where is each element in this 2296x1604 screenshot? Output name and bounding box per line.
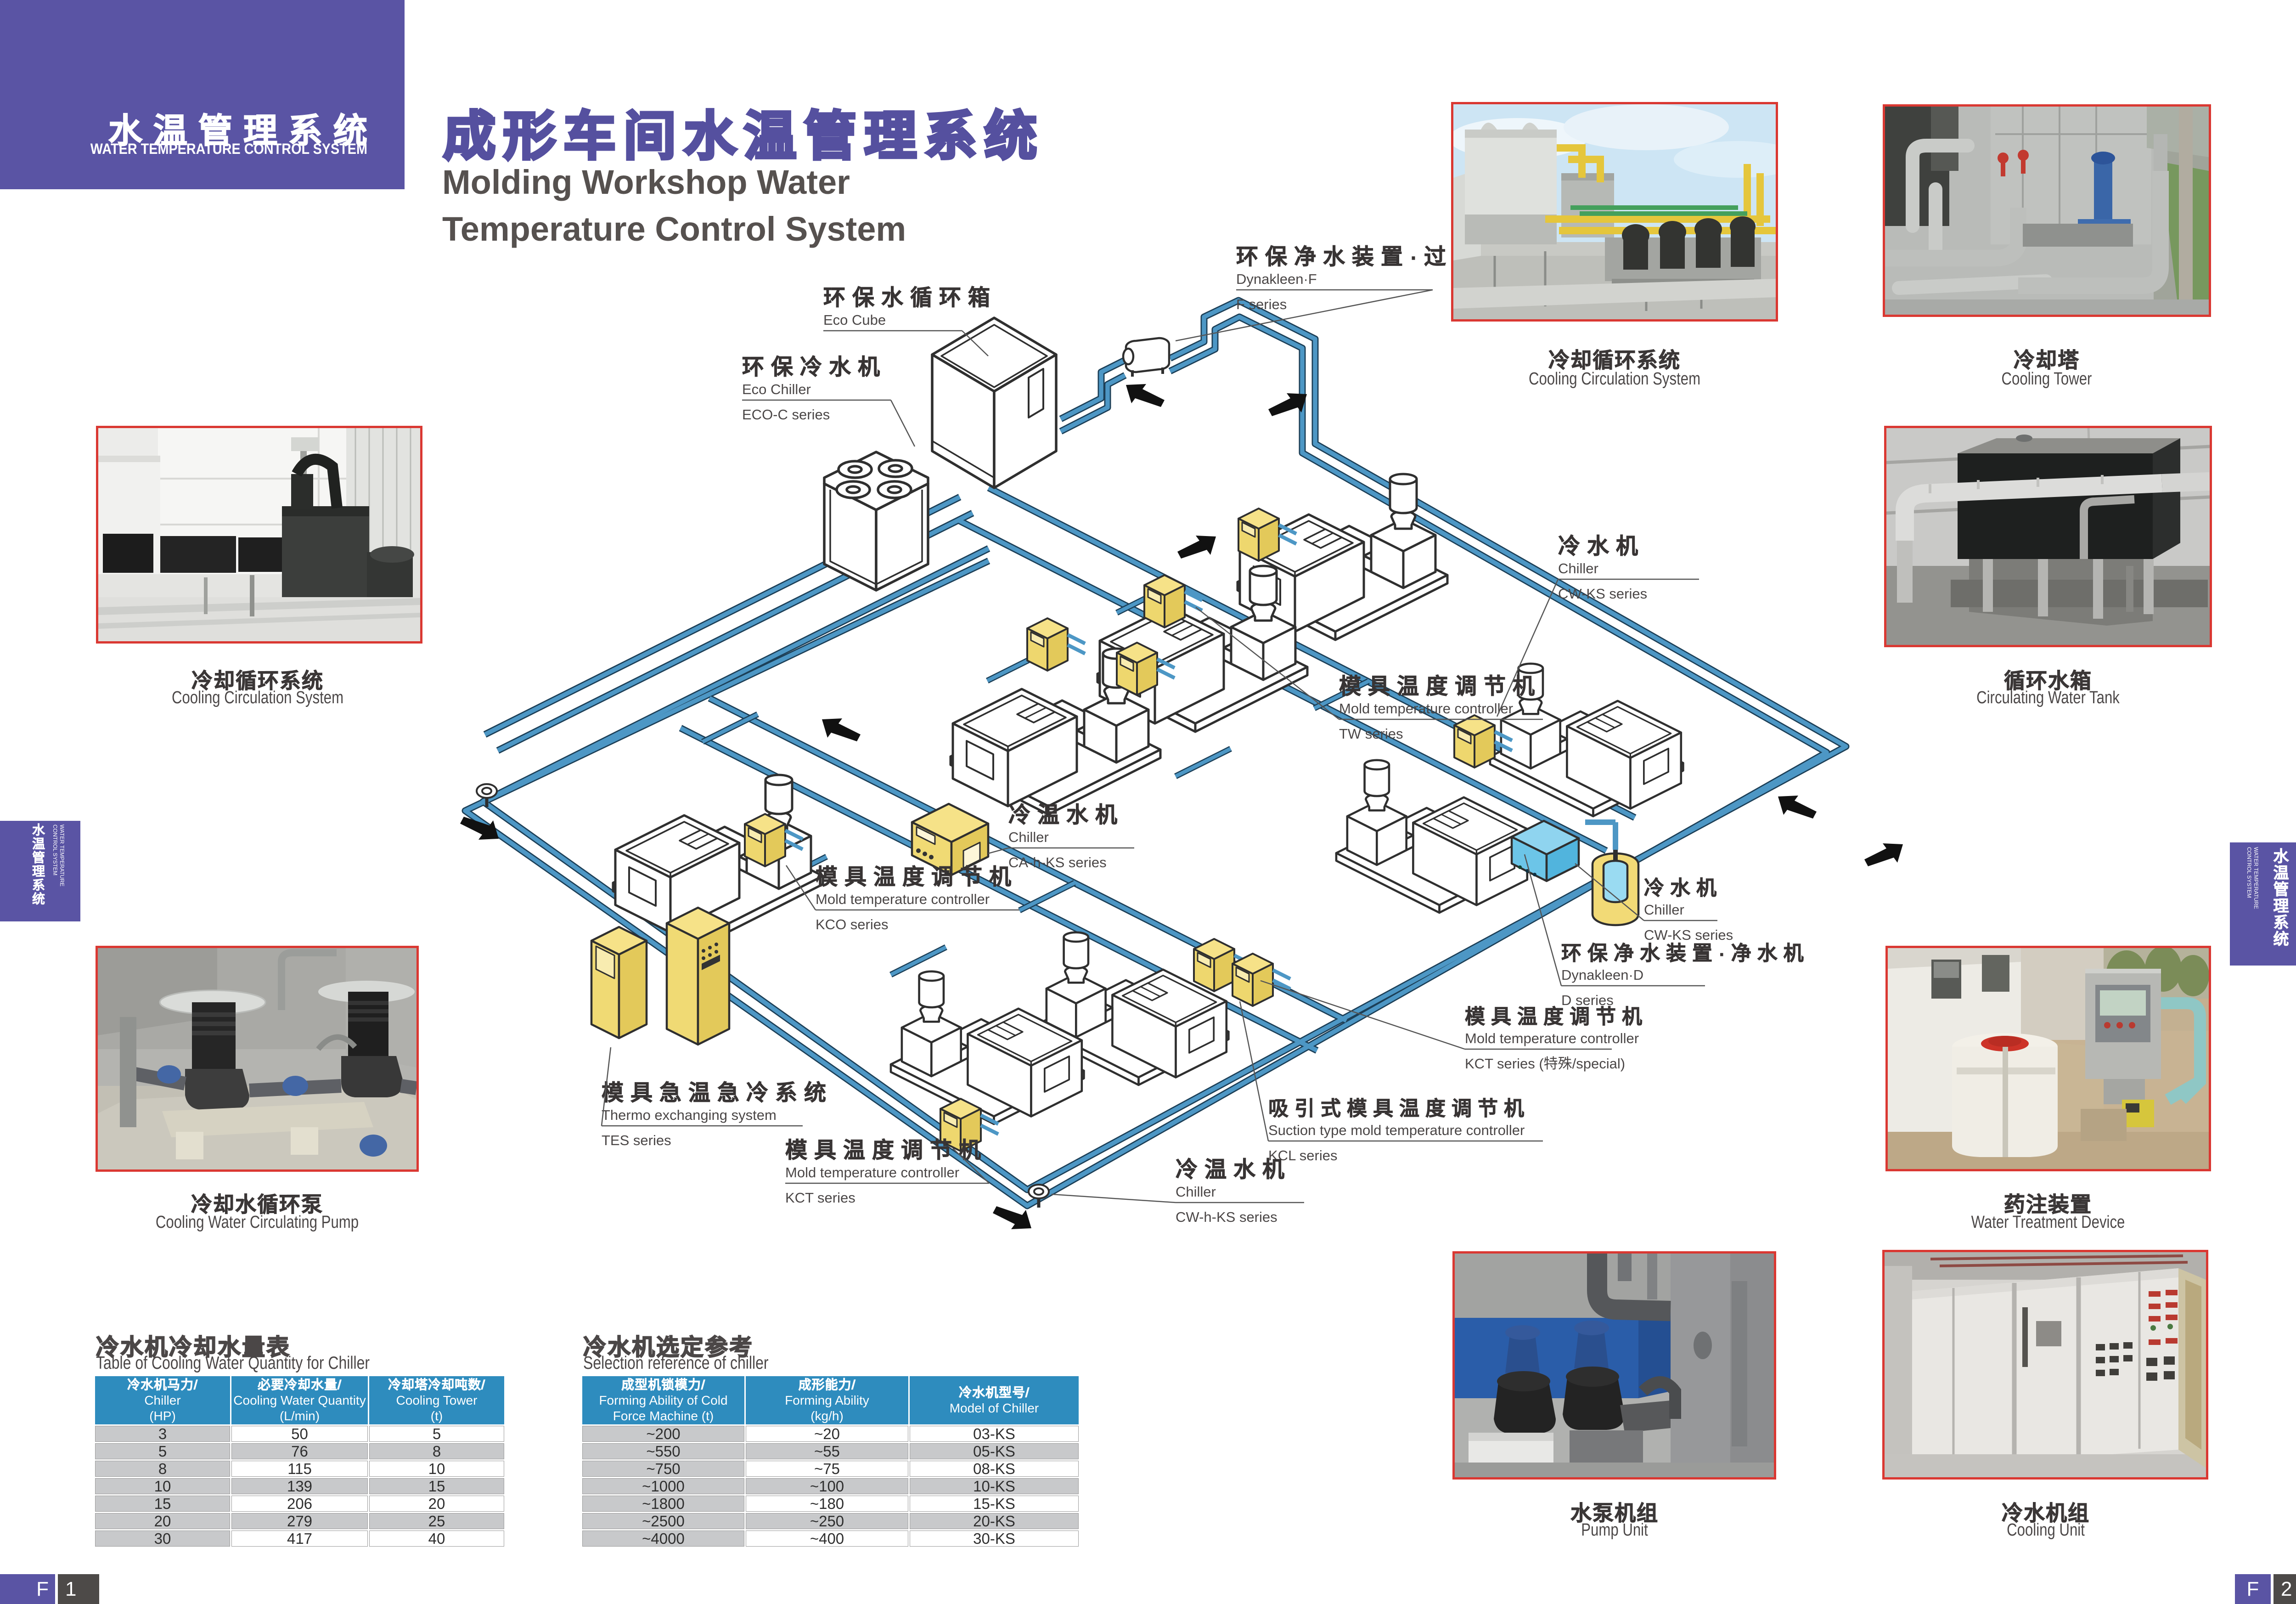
svg-text:KCT series (特殊/special): KCT series (特殊/special): [1465, 1056, 1625, 1072]
svg-text:冷温水机: 冷温水机: [1008, 803, 1124, 827]
svg-text:KCT series: KCT series: [785, 1190, 855, 1206]
svg-text:CW-KS series: CW-KS series: [1558, 586, 1647, 602]
svg-text:模具温度调节机: 模具温度调节机: [785, 1138, 988, 1163]
svg-text:冷水机: 冷水机: [1644, 877, 1722, 899]
svg-text:CW-KS series: CW-KS series: [1644, 927, 1733, 943]
svg-text:模具温度调节机: 模具温度调节机: [1339, 674, 1542, 699]
svg-text:冷温水机: 冷温水机: [1176, 1158, 1291, 1182]
svg-text:Chiller: Chiller: [1558, 560, 1598, 576]
svg-text:环保净水装置·净水机: 环保净水装置·净水机: [1561, 942, 1810, 965]
svg-text:Chiller: Chiller: [1176, 1184, 1216, 1200]
svg-text:ECO-C series: ECO-C series: [742, 407, 830, 423]
svg-text:Mold temperature controller: Mold temperature controller: [1339, 700, 1513, 717]
svg-text:模具温度调节机: 模具温度调节机: [1465, 1005, 1648, 1028]
svg-text:Chiller: Chiller: [1008, 829, 1049, 845]
svg-text:Eco Cube: Eco Cube: [823, 312, 886, 328]
svg-text:模具急温急冷系统: 模具急温急冷系统: [602, 1081, 833, 1105]
svg-text:Mold temperature controller: Mold temperature controller: [1465, 1030, 1639, 1046]
svg-text:冷水机: 冷水机: [1558, 534, 1645, 559]
svg-text:TES series: TES series: [602, 1132, 671, 1148]
svg-text:TW series: TW series: [1339, 726, 1403, 742]
svg-text:Thermo exchanging system: Thermo exchanging system: [602, 1107, 777, 1123]
svg-text:环保冷水机: 环保冷水机: [742, 355, 887, 379]
svg-text:模具温度调节机: 模具温度调节机: [816, 865, 1018, 889]
svg-text:环保水循环箱: 环保水循环箱: [823, 286, 997, 310]
svg-text:F series: F series: [1236, 296, 1287, 312]
svg-text:CW-h-KS series: CW-h-KS series: [1176, 1209, 1277, 1225]
svg-text:Mold temperature controller: Mold temperature controller: [816, 891, 990, 907]
svg-text:Mold temperature controller: Mold temperature controller: [785, 1164, 959, 1180]
svg-text:KCO series: KCO series: [816, 916, 888, 932]
svg-text:Suction type mold temperature: Suction type mold temperature controller: [1268, 1122, 1525, 1138]
svg-text:CA-h-KS series: CA-h-KS series: [1008, 854, 1107, 870]
svg-text:Dynakleen·F: Dynakleen·F: [1236, 271, 1317, 287]
svg-text:吸引式模具温度调节机: 吸引式模具温度调节机: [1268, 1097, 1530, 1120]
svg-text:Chiller: Chiller: [1644, 902, 1684, 918]
svg-text:Eco Chiller: Eco Chiller: [742, 381, 811, 397]
svg-text:Dynakleen·D: Dynakleen·D: [1561, 967, 1643, 983]
